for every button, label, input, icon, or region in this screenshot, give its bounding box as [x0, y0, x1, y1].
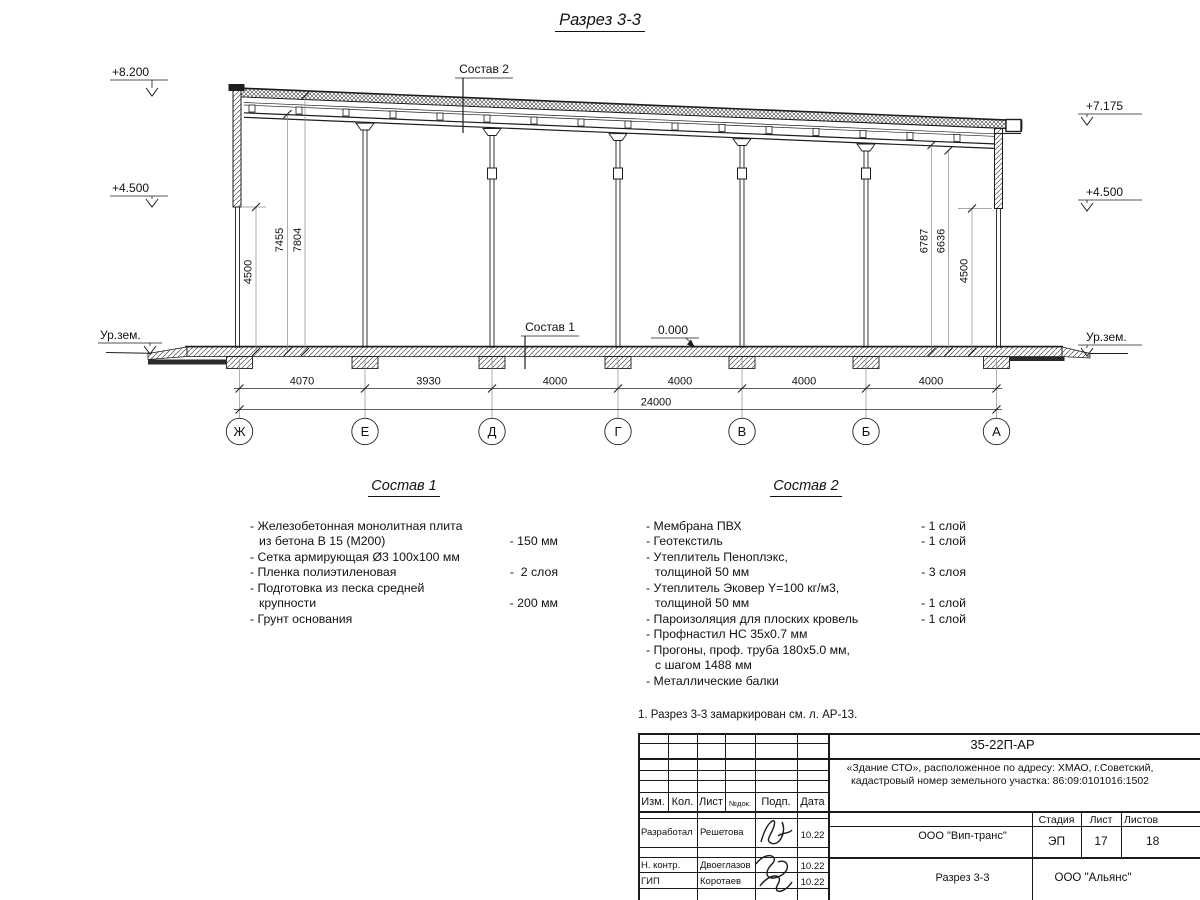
doc-number: 35-22П-АР [828, 739, 1200, 751]
sostav2-block: Состав 2 - Мембрана ПВХ - 1 слой - Геоте… [646, 479, 966, 689]
svg-text:4500: 4500 [959, 259, 971, 283]
material-item: - Мембрана ПВХ - 1 слой [646, 519, 966, 535]
sheets-value: 18 [1146, 835, 1159, 847]
total-dimension: 24000 [641, 397, 672, 409]
material-item: - Прогоны, проф. труба 180х5.0 мм,с шаго… [646, 643, 966, 674]
date-2: 10.22 [797, 861, 828, 873]
project-line1: «Здание СТО», расположенное по адресу: Х… [828, 762, 1200, 774]
elevation-7175: +7.175 [1078, 99, 1142, 125]
columns [236, 123, 1001, 348]
right-wall [995, 129, 1003, 209]
svg-text:Ур.зем.: Ур.зем. [100, 328, 141, 342]
titleblock-line [638, 733, 1200, 735]
svg-text:4500: 4500 [243, 260, 255, 284]
axis-label: Е [361, 424, 370, 439]
material-item: - Геотекстиль - 1 слой [646, 534, 966, 550]
svg-text:4070: 4070 [290, 376, 314, 388]
drawing-note: 1. Разрез 3-3 замаркирован см. л. АР-13. [638, 709, 857, 721]
page-title: Разрез 3-3 [0, 11, 1200, 32]
titleblock-line [638, 733, 640, 900]
col-kol: Кол. [668, 796, 697, 808]
left-wall [233, 91, 241, 208]
material-item: - Подготовка из песка среднейкрупности -… [250, 581, 558, 612]
contractor: ООО "Вип-транс" [828, 830, 1032, 842]
svg-text:4000: 4000 [792, 376, 816, 388]
section-drawing: +8.200 +4.500 Ур.зем. +7.175 +4.500 [0, 0, 1200, 460]
titleblock-line [638, 780, 828, 781]
material-item: - Профнастил НС 35х0.7 мм [646, 627, 966, 643]
titleblock-line [638, 818, 828, 819]
svg-text:+4.500: +4.500 [112, 181, 149, 195]
axis-label: Г [614, 424, 621, 439]
titleblock-line [828, 857, 1200, 859]
ground-level-left: Ур.зем. [98, 328, 162, 354]
role-razrabotal: Разработал [641, 827, 693, 839]
svg-text:3930: 3930 [416, 376, 440, 388]
titleblock-line [638, 792, 828, 793]
sheet-label: Лист [1081, 814, 1121, 826]
elevation-8200: +8.200 [110, 65, 168, 96]
sostav2-heading: Состав 2 [646, 479, 966, 497]
role-nkontr: Н. контр. [641, 860, 680, 872]
ground-level-right: Ур.зем. [1078, 330, 1142, 356]
left-parapet-cap [229, 85, 244, 91]
axis-label: Б [862, 424, 871, 439]
role-gip: ГИП [641, 876, 660, 888]
sostav2-leader-label: Состав 2 [459, 62, 509, 76]
material-item: - Металлические балки [646, 674, 966, 690]
svg-text:0.000: 0.000 [658, 323, 688, 337]
svg-text:4000: 4000 [668, 376, 692, 388]
bottom-dimensions: 4070 3930 4000 4000 4000 4000 24000 [234, 359, 1002, 419]
col-podp: Подп. [755, 796, 797, 808]
roof-right-end-cap [1006, 120, 1021, 132]
sostav1-leader-label: Состав 1 [525, 320, 575, 334]
svg-text:Ур.зем.: Ур.зем. [1086, 330, 1127, 344]
title-block: Изм. Кол. Лист №док. Подп. Дата Разработ… [638, 733, 1200, 900]
material-item: - Пароизоляция для плоских кровель - 1 с… [646, 612, 966, 628]
titleblock-line [1121, 811, 1122, 857]
axis-label: В [738, 424, 747, 439]
org-name: ООО "Альянс" [1032, 872, 1200, 884]
drawing-sheet: { "title": "Разрез 3-3", "drawing": { "e… [0, 0, 1200, 900]
signature-reshetova [753, 812, 797, 850]
date-1: 10.22 [797, 830, 828, 842]
material-item: - Железобетонная монолитная плитаиз бето… [250, 519, 558, 550]
material-item: - Утеплитель Пеноплэкс,толщиной 50 мм - … [646, 550, 966, 581]
titleblock-line [697, 733, 698, 900]
name-reshetova: Решетова [700, 827, 744, 839]
drawing-name: Разрез 3-3 [828, 872, 1032, 884]
svg-text:+8.200: +8.200 [112, 65, 149, 79]
axis-bubbles: Ж Е Д Г В Б А [226, 418, 1009, 444]
svg-text:4000: 4000 [543, 376, 567, 388]
material-item: - Грунт основания [250, 612, 558, 628]
titleblock-line [638, 743, 828, 744]
svg-text:4000: 4000 [919, 376, 943, 388]
signature-korotaev [750, 848, 800, 898]
dim-ticks [252, 92, 976, 356]
axis-label: Ж [233, 424, 245, 439]
svg-text:7455: 7455 [274, 228, 286, 252]
axis-label: Д [488, 424, 497, 439]
sheet-value: 17 [1081, 835, 1121, 847]
col-list: Лист [697, 796, 725, 808]
project-line2: кадастровый номер земельного участка: 86… [828, 775, 1200, 787]
right-apron [1062, 347, 1090, 358]
material-item: - Пленка полиэтиленовая - 2 слоя [250, 565, 558, 581]
svg-text:+4.500: +4.500 [1086, 185, 1123, 199]
col-ndok: №док. [725, 798, 755, 810]
sheets-label: Листов [1124, 814, 1158, 826]
sostav1-heading: Состав 1 [250, 479, 558, 497]
axis-label: А [992, 424, 1001, 439]
titleblock-line [638, 811, 1200, 813]
titleblock-line [828, 826, 1200, 827]
roof-assembly [233, 88, 1022, 149]
material-item: - Утеплитель Эковер Y=100 кг/м3,толщиной… [646, 581, 966, 612]
elevation-4500-right: +4.500 [1078, 185, 1142, 211]
titleblock-line [638, 758, 1200, 760]
stage-label: Стадия [1032, 814, 1081, 826]
name-dvoeglazov: Двоеглазов [700, 860, 751, 872]
svg-text:7804: 7804 [292, 228, 304, 252]
svg-text:6636: 6636 [936, 229, 948, 253]
titleblock-line [638, 770, 828, 771]
elevation-zero: 0.000 [651, 323, 699, 348]
stage-value: ЭП [1032, 835, 1081, 847]
material-item: - Сетка армирующая Ø3 100х100 мм [250, 550, 558, 566]
sostav1-block: Состав 1 - Железобетонная монолитная пли… [250, 479, 558, 627]
svg-text:+7.175: +7.175 [1086, 99, 1123, 113]
col-data: Дата [797, 796, 828, 808]
svg-text:6787: 6787 [919, 229, 931, 253]
col-izm: Изм. [638, 796, 668, 808]
date-3: 10.22 [797, 877, 828, 889]
name-korotaev: Коротаев [700, 876, 741, 888]
column-splice-plates [488, 168, 871, 179]
elevation-4500-left: +4.500 [110, 181, 168, 207]
